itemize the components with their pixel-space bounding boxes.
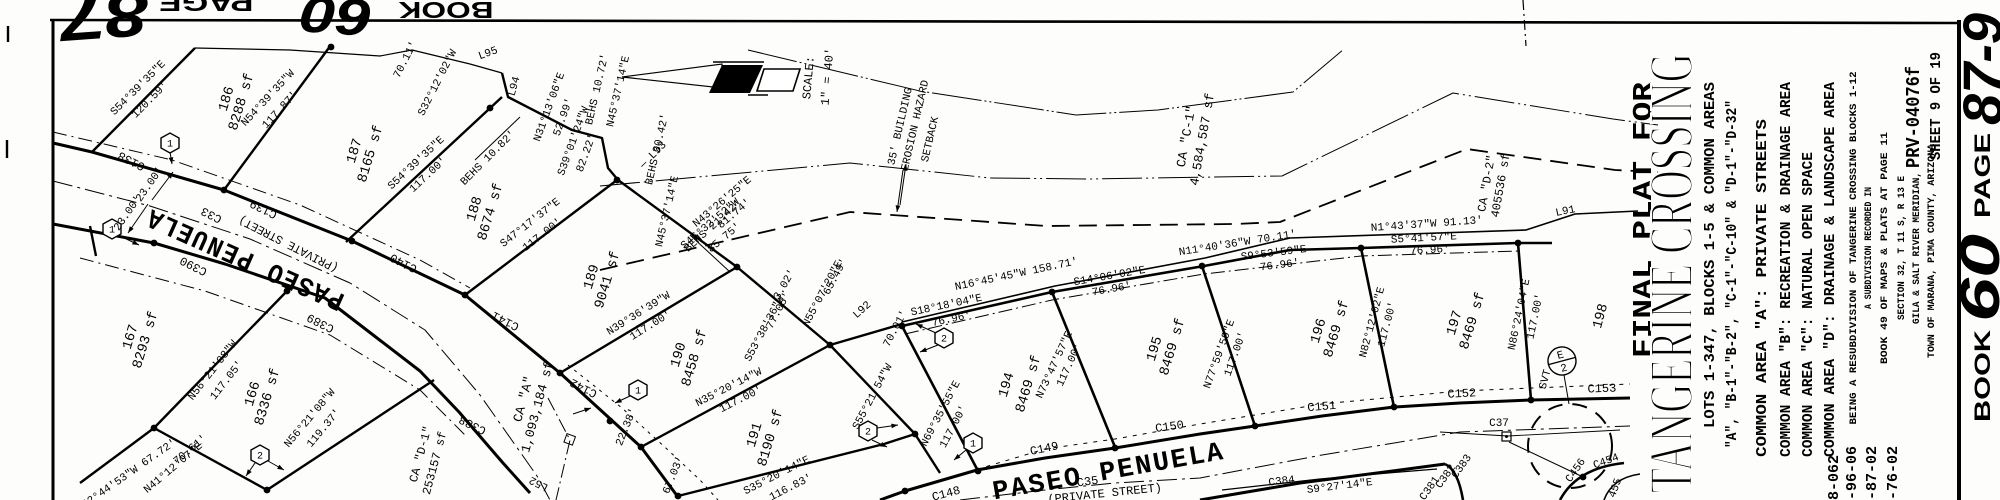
svg-text:1: 1 (970, 440, 976, 451)
svg-text:1: 1 (167, 140, 173, 151)
svg-text:C153: C153 (1587, 382, 1616, 397)
svg-text:PAGE: PAGE (159, 0, 254, 16)
svg-text:LOTS 1-347, BLOCKS 1-5 & COMMO: LOTS 1-347, BLOCKS 1-5 & COMMON AREAS (1702, 82, 1719, 428)
svg-text:BOOK: BOOK (398, 0, 494, 23)
svg-text:A SUBDIVISION RECORDED IN: A SUBDIVISION RECORDED IN (1864, 187, 1875, 309)
svg-text:C37: C37 (1489, 418, 1509, 430)
svg-text:2: 2 (941, 335, 947, 346)
svg-text:2-96-06: 2-96-06 (1844, 446, 1861, 500)
svg-text:COMMON AREA ″B″: RECREATION &: COMMON AREA ″B″: RECREATION & DRAINAGE A… (1778, 82, 1795, 457)
svg-text:COMMON AREA ″D″: DRAINAGE & L: COMMON AREA ″D″: DRAINAGE & LANDSCAPE AR… (1822, 82, 1839, 457)
svg-text:98-062: 98-062 (1826, 455, 1843, 500)
svg-text:2: 2 (865, 428, 871, 439)
svg-text:GILA & SALT RIVER MERIDIAN,: GILA & SALT RIVER MERIDIAN, (1912, 172, 1923, 324)
svg-text:SECTION 32, T 11 S, R 13 E: SECTION 32, T 11 S, R 13 E (1897, 176, 1908, 320)
svg-text:TOWN OF MARANA, PIMA COUNTY, A: TOWN OF MARANA, PIMA COUNTY, ARIZONA. (1927, 138, 1938, 358)
svg-text:5-76-02: 5-76-02 (1885, 446, 1902, 500)
svg-text:BOOK: BOOK (1970, 330, 1995, 422)
svg-text:76.96′: 76.96′ (1410, 244, 1450, 258)
svg-text:BOOK 49 OF MAPS & PLATS AT PAG: BOOK 49 OF MAPS & PLATS AT PAGE 11 (1880, 132, 1891, 364)
svg-text:″A″, ″B-1″-″B-2″, ″C-1″-″C-10″: ″A″, ″B-1″-″B-2″, ″C-1″-″C-10″ & ″D-1″-″… (1724, 100, 1741, 448)
svg-text:87-9: 87-9 (1951, 13, 2000, 125)
svg-text:PAGE: PAGE (1970, 133, 1995, 218)
svg-text:1: 1 (635, 387, 641, 398)
svg-text:60: 60 (1948, 234, 2000, 322)
svg-text:2: 2 (257, 452, 263, 463)
svg-text:TANGERINE CROSSING: TANGERINE CROSSING (1638, 53, 1706, 493)
svg-text:5-87-02: 5-87-02 (1864, 446, 1881, 500)
svg-text:COMMON AREA ″C″: NATURAL OPEN: COMMON AREA ″C″: NATURAL OPEN SPACE (1800, 152, 1817, 457)
svg-text:C151: C151 (1307, 399, 1337, 415)
svg-text:87: 87 (55, 0, 152, 55)
svg-text:COMMON AREA ″A″: PRIVATE STRE: COMMON AREA ″A″: PRIVATE STREETS (1754, 119, 1771, 457)
svg-text:60: 60 (299, 0, 375, 46)
svg-text:SHEET 9 OF 19: SHEET 9 OF 19 (1928, 52, 1945, 160)
svg-text:PRV-04076f: PRV-04076f (1903, 66, 1925, 168)
svg-text:C152: C152 (1447, 386, 1477, 401)
svg-text:BEING A RESUBDIVISION OF TANGE: BEING A RESUBDIVISION OF TANGERINE CROSS… (1849, 72, 1860, 425)
svg-text:C35: C35 (1076, 474, 1099, 491)
